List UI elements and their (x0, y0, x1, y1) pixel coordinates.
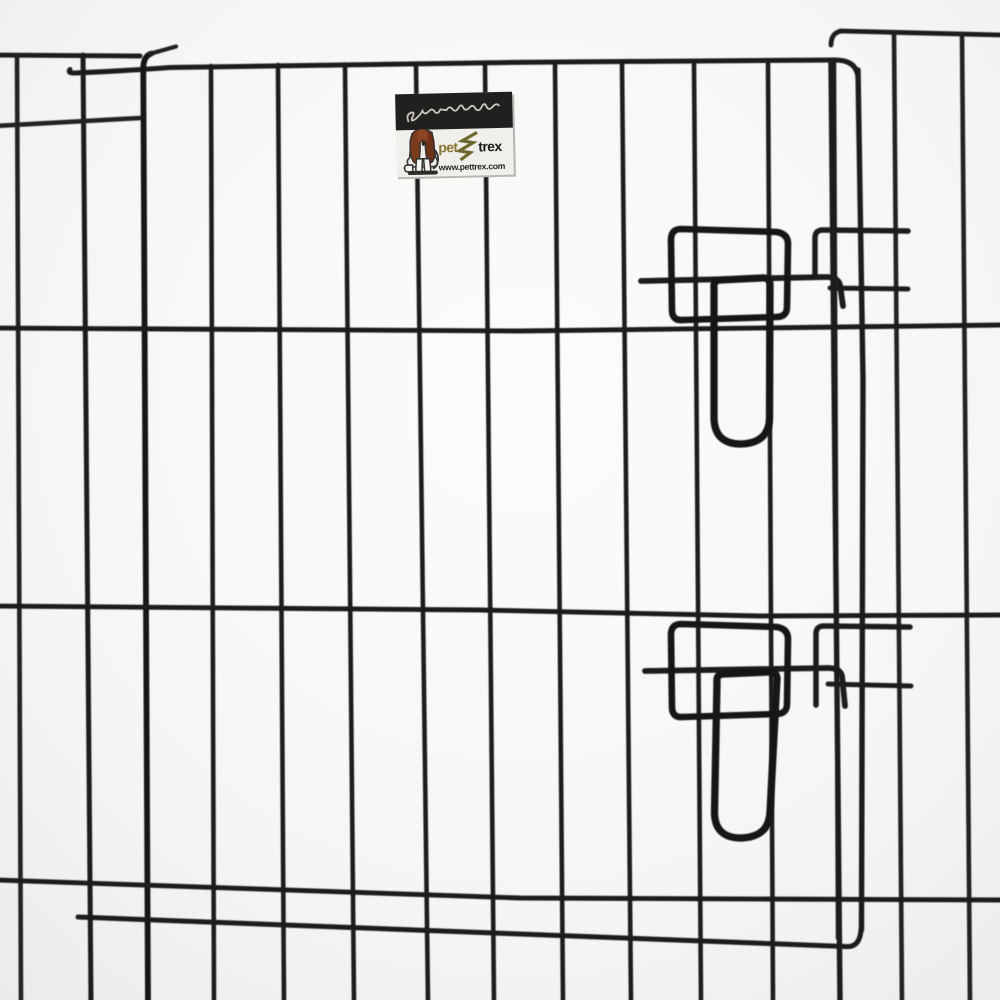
svg-text:trex: trex (478, 138, 502, 155)
svg-text:www.pettrex.com: www.pettrex.com (438, 161, 506, 173)
svg-text:pet: pet (438, 139, 458, 155)
